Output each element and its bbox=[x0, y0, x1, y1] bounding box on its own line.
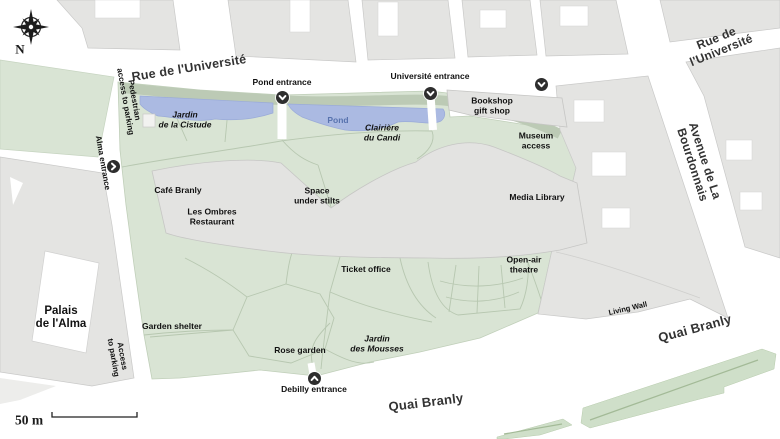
chevron-down-icon bbox=[535, 78, 548, 91]
map-canvas: Rue de l'Université Rue de l'Université … bbox=[0, 0, 780, 439]
map-base bbox=[0, 0, 780, 439]
chevron-down-icon bbox=[424, 87, 437, 100]
pond-entrance-marker[interactable] bbox=[276, 91, 289, 104]
garden-structure bbox=[143, 114, 155, 127]
chevron-up-icon bbox=[308, 372, 321, 385]
universite-entrance-marker[interactable] bbox=[424, 87, 437, 100]
green-block-northwest bbox=[0, 60, 114, 157]
chevron-down-icon bbox=[276, 91, 289, 104]
bookshop-side-entrance-marker[interactable] bbox=[535, 78, 548, 91]
chevron-right-icon bbox=[107, 160, 120, 173]
alma-entrance-marker[interactable] bbox=[107, 160, 120, 173]
debilly-entrance-marker[interactable] bbox=[308, 372, 321, 385]
